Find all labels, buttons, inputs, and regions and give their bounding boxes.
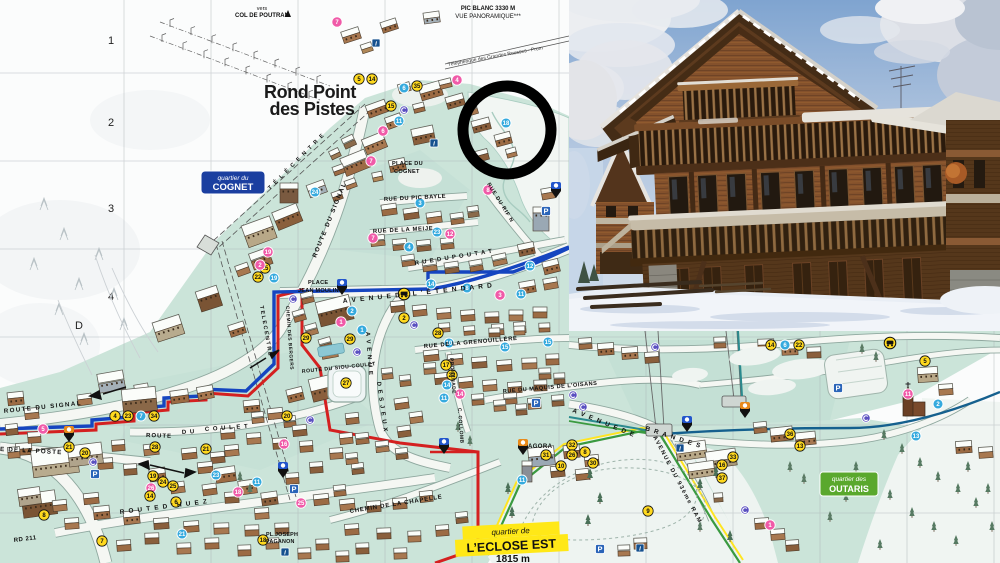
svg-text:11: 11 [518,292,525,298]
svg-text:PIC BLANC 3330 M: PIC BLANC 3330 M [461,6,515,12]
svg-text:PL.JOSEPH: PL.JOSEPH [266,532,298,538]
svg-text:30: 30 [590,461,597,467]
svg-text:P: P [92,470,97,479]
svg-text:20: 20 [82,451,89,457]
svg-text:28: 28 [435,331,442,337]
svg-text:2: 2 [108,117,114,129]
svg-text:26: 26 [569,453,576,459]
svg-text:14: 14 [457,392,464,398]
svg-text:24: 24 [160,480,167,486]
svg-text:3: 3 [108,203,114,215]
svg-text:21: 21 [179,532,186,538]
svg-text:1: 1 [108,35,114,47]
svg-text:25: 25 [298,501,305,507]
svg-text:15: 15 [502,345,509,351]
svg-text:23: 23 [213,473,220,479]
svg-text:15: 15 [545,340,552,346]
svg-text:P: P [835,384,840,393]
svg-text:COGNET: COGNET [394,169,420,175]
svg-text:i: i [679,445,681,452]
svg-text:11: 11 [519,478,526,484]
svg-text:37: 37 [719,476,726,482]
svg-text:JEAN MOULIN: JEAN MOULIN [298,288,339,294]
svg-text:1815 m: 1815 m [496,554,530,563]
svg-text:PAGANON: PAGANON [266,539,295,545]
svg-text:PLACE: PLACE [308,280,328,286]
svg-text:AGORA: AGORA [528,444,553,450]
svg-text:28: 28 [152,445,159,451]
svg-text:14: 14 [147,494,154,500]
svg-text:11: 11 [254,480,261,486]
svg-text:14: 14 [768,343,775,349]
svg-text:D: D [75,320,83,332]
svg-text:15: 15 [388,104,395,110]
svg-text:i: i [284,549,286,556]
svg-text:23: 23 [434,230,441,236]
svg-text:19: 19 [271,276,278,282]
svg-text:19: 19 [265,250,272,256]
svg-text:12: 12 [527,264,534,270]
svg-text:21: 21 [66,445,73,451]
svg-text:36: 36 [787,432,794,438]
svg-text:des Pistes: des Pistes [269,99,354,119]
svg-text:14: 14 [369,77,376,83]
svg-text:VUE PANORAMIQUE***: VUE PANORAMIQUE*** [455,14,521,20]
svg-text:20: 20 [284,414,291,420]
svg-text:22: 22 [255,275,262,281]
svg-text:OUTARIS: OUTARIS [829,484,869,494]
svg-text:16: 16 [281,442,288,448]
svg-text:P: P [533,399,538,408]
svg-text:ROUTE: ROUTE [146,433,172,440]
svg-text:35: 35 [414,84,421,90]
svg-text:P: P [543,207,548,216]
svg-text:21: 21 [203,447,210,453]
svg-text:18: 18 [503,121,510,127]
svg-text:14: 14 [428,282,435,288]
svg-text:34: 34 [151,414,158,420]
svg-text:22: 22 [796,343,803,349]
svg-text:P: P [597,545,602,554]
svg-text:quartier du: quartier du [217,175,248,182]
svg-text:13: 13 [913,434,920,440]
svg-text:12: 12 [447,232,454,238]
svg-text:18: 18 [235,490,242,496]
svg-text:11: 11 [441,396,448,402]
svg-text:19: 19 [150,474,157,480]
svg-text:COGNET: COGNET [213,182,254,193]
svg-text:29: 29 [303,336,310,342]
svg-text:31: 31 [543,453,550,459]
svg-text:COL DE POUTRAN: COL DE POUTRAN [235,13,289,19]
svg-text:D U: D U [182,429,196,436]
svg-text:27: 27 [343,381,350,387]
svg-text:PLACE DU: PLACE DU [392,161,423,167]
svg-text:25: 25 [170,484,177,490]
svg-text:32: 32 [569,443,576,449]
svg-text:13: 13 [797,444,804,450]
svg-text:P: P [291,485,296,494]
svg-text:11: 11 [396,119,403,125]
svg-text:quartier des: quartier des [832,476,867,483]
svg-text:24: 24 [312,190,319,196]
svg-text:23: 23 [125,414,132,420]
svg-text:i: i [433,140,435,147]
svg-text:16: 16 [719,463,726,469]
svg-text:i: i [375,40,377,47]
svg-text:vers: vers [257,6,268,12]
svg-text:33: 33 [730,455,737,461]
svg-text:29: 29 [347,337,354,343]
svg-text:i: i [639,545,641,552]
svg-text:11: 11 [905,392,912,398]
svg-text:10: 10 [558,464,565,470]
